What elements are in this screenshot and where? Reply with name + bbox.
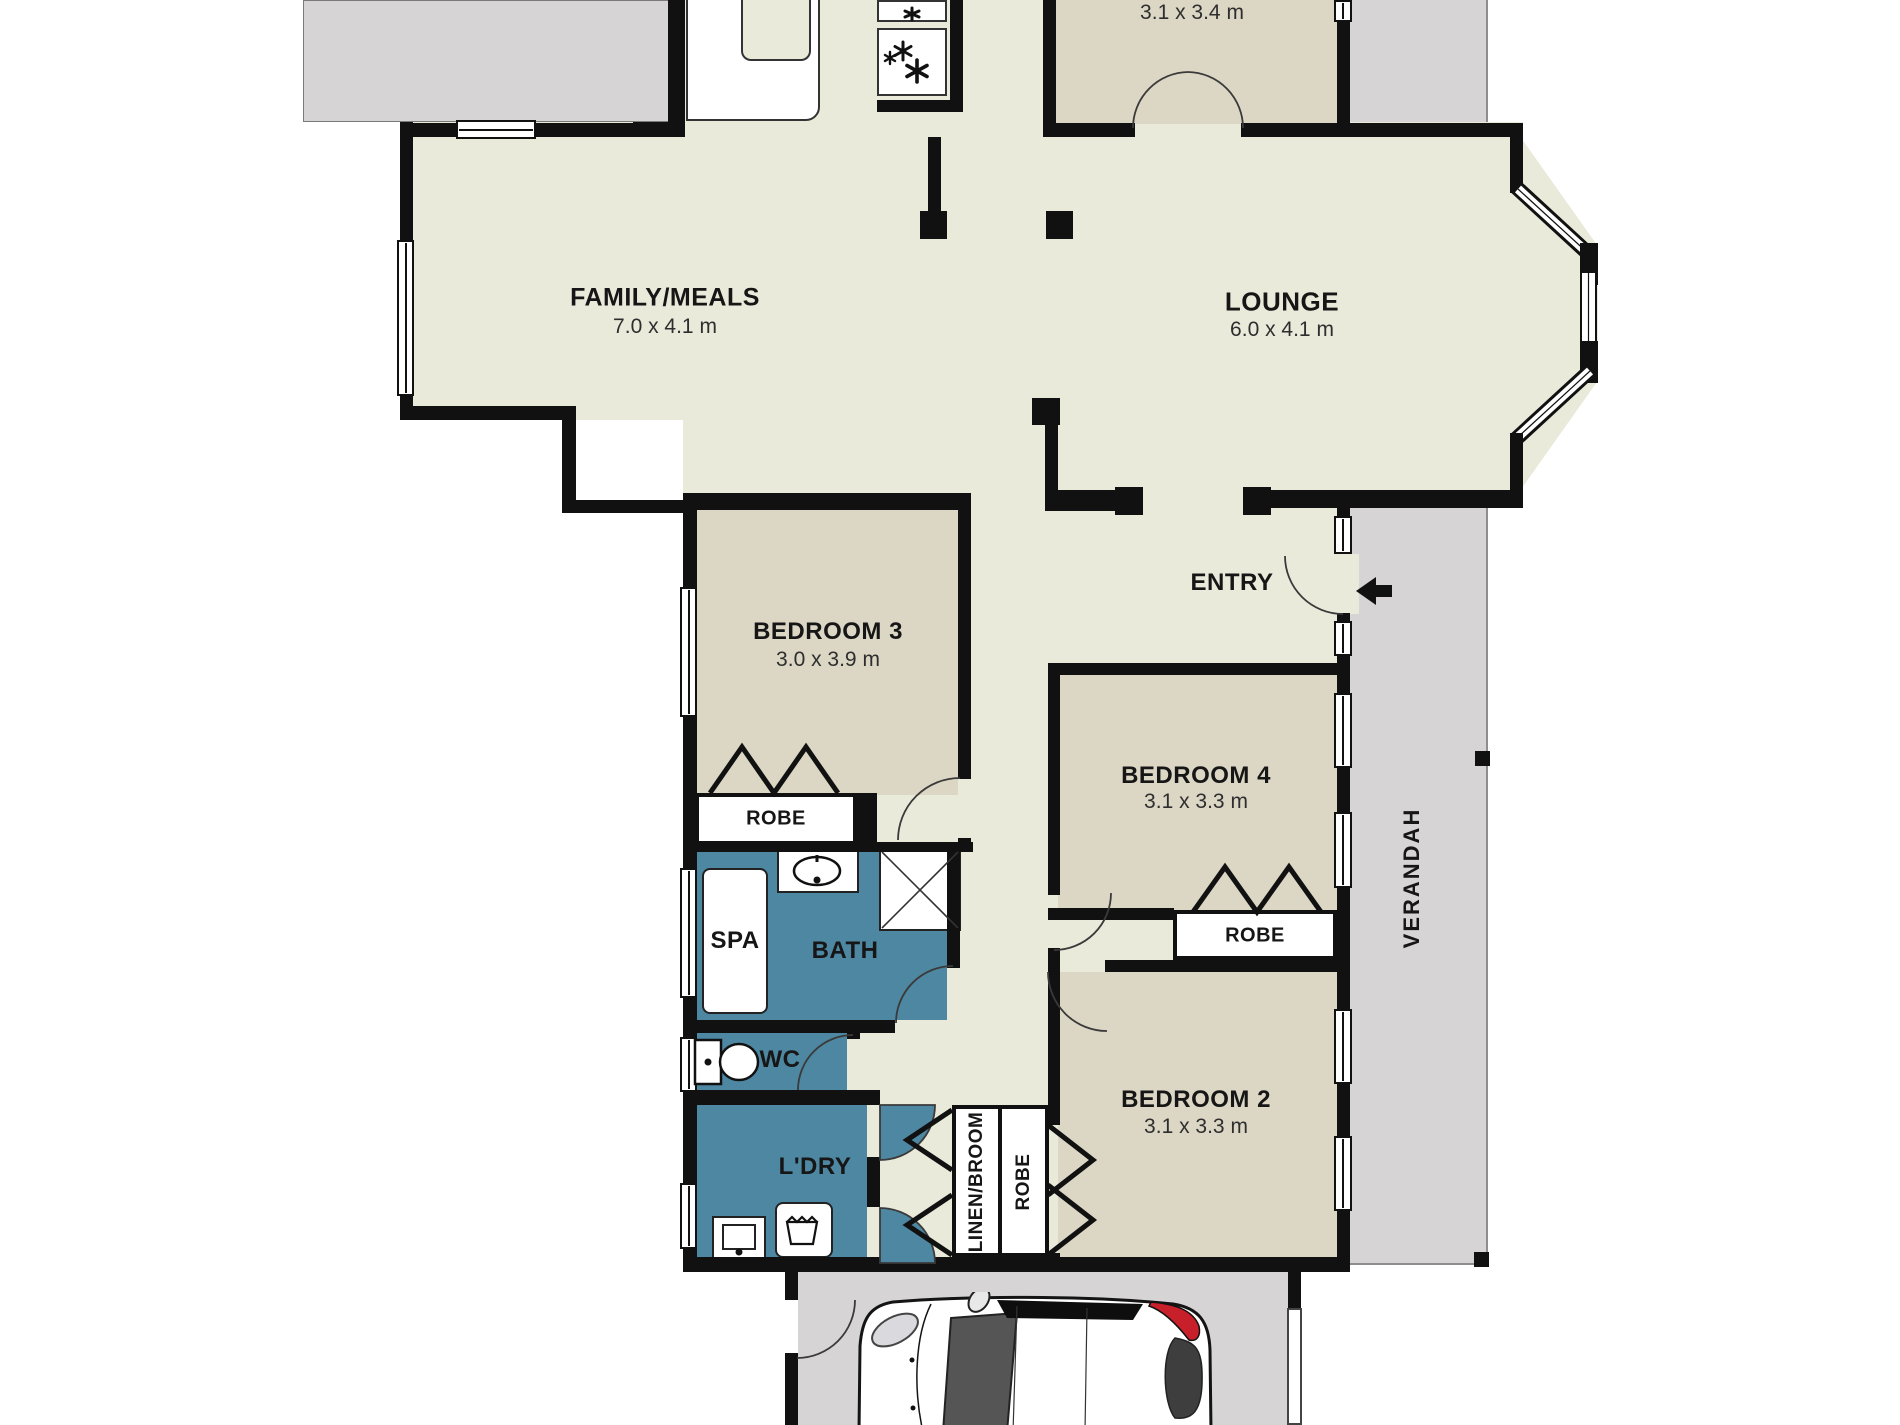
- door-arc-entry: [1285, 556, 1343, 614]
- lounge-label: LOUNGE: [1225, 287, 1339, 318]
- spa-label: SPA: [710, 927, 759, 955]
- robe-bed4-label: ROBE: [1225, 925, 1285, 948]
- toilet-glyph: [695, 1040, 758, 1084]
- floor-plan: 3.1 x 3.4 m FAMILY/MEALS 7.0 x 4.1 m LOU…: [0, 0, 1900, 1425]
- family-meals-label: FAMILY/MEALS: [570, 284, 760, 313]
- laundry-tub-glyph: [736, 1249, 743, 1256]
- door-arcs: [797, 72, 1343, 1358]
- car-rear-window: [1165, 1338, 1202, 1418]
- bath-label: BATH: [812, 937, 879, 965]
- snowflake-icon: [905, 8, 919, 20]
- family-meals-dims: 7.0 x 4.1 m: [613, 315, 717, 339]
- linen-broom-label: LINEN/BROOM: [966, 1112, 988, 1253]
- snowflake-icons: [885, 8, 927, 82]
- car-windshield: [943, 1313, 1017, 1425]
- door-arc-bath: [896, 966, 953, 1023]
- bifold-robe-bed2: [1048, 1125, 1093, 1195]
- robe-bed3-label: ROBE: [746, 808, 806, 831]
- plan-linework: [0, 0, 1900, 1425]
- bedroom3-dims: 3.0 x 3.9 m: [776, 648, 880, 672]
- snowflake-icon: [907, 60, 927, 82]
- entry-arrow-icon: [1356, 577, 1392, 605]
- double-door-arc: [1133, 72, 1188, 128]
- bifold-robe-bed4: [1193, 867, 1321, 912]
- snowflake-icon: [895, 42, 911, 60]
- shower-glyph: [882, 852, 958, 928]
- bedroom4-label: BEDROOM 4: [1121, 762, 1271, 790]
- verandah-label: VERANDAH: [1399, 808, 1425, 949]
- washer-glyph: [787, 1217, 817, 1244]
- lounge-dims: 6.0 x 4.1 m: [1230, 318, 1334, 342]
- bifold-robe-bed3: [710, 747, 838, 793]
- bedroom4-dims: 3.1 x 3.3 m: [1144, 790, 1248, 814]
- laundry-label: L'DRY: [779, 1153, 852, 1181]
- entry-label: ENTRY: [1191, 569, 1274, 597]
- bifold-robe-bed2: [1048, 1185, 1093, 1255]
- wc-label: WC: [760, 1046, 801, 1074]
- bedroom3-label: BEDROOM 3: [753, 618, 903, 646]
- door-arc-bedroom2: [1048, 972, 1107, 1031]
- bedroom2-dims: 3.1 x 3.3 m: [1144, 1115, 1248, 1139]
- snowflake-icon: [885, 52, 895, 64]
- car-hood-dot: [911, 1406, 916, 1411]
- door-arc-bedroom4: [1054, 893, 1111, 950]
- robe-bed2-label: ROBE: [1013, 1154, 1035, 1211]
- bedroom2-label: BEDROOM 2: [1121, 1086, 1271, 1114]
- car-hood-dot: [910, 1358, 915, 1363]
- top-room-dims: 3.1 x 3.4 m: [1140, 1, 1244, 25]
- basin-glyph: [794, 855, 840, 885]
- car-top-view: [845, 1292, 1245, 1425]
- door-arc-bedroom3: [898, 778, 960, 840]
- door-arc-wc: [798, 1035, 853, 1090]
- double-door-arc: [1188, 72, 1243, 128]
